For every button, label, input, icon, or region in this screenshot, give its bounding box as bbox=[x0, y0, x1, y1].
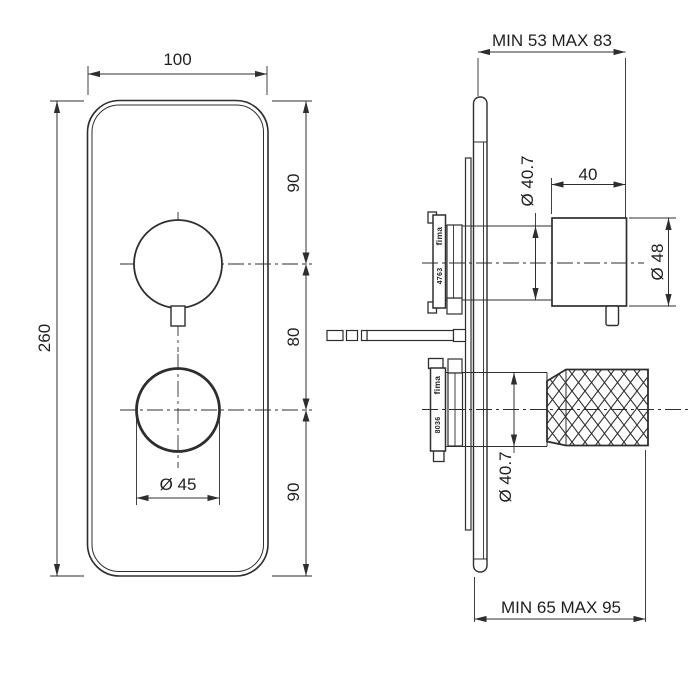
upper-cartridge-brand-label: fima bbox=[434, 227, 444, 246]
dim-vertical-chain: 90 80 90 bbox=[272, 101, 312, 576]
dim-upper-knob-diameter: Ø 48 bbox=[629, 218, 676, 306]
side-back-plate bbox=[466, 158, 472, 530]
chain-tick-lower bbox=[303, 399, 310, 411]
segment-bottom-label: 90 bbox=[284, 483, 303, 502]
upper-knob-side bbox=[552, 218, 627, 306]
dim-plate-width: 100 bbox=[88, 50, 267, 95]
upper-cartridge-code-label: 4763 bbox=[437, 268, 444, 285]
chain-tick-lower2 bbox=[303, 410, 310, 422]
front-view: 100 260 90 80 90 Ø 45 bbox=[35, 50, 312, 576]
dim-upper-knob-length: 40 bbox=[552, 165, 626, 214]
plate-height-label: 260 bbox=[35, 324, 54, 352]
pipe-end-cap bbox=[327, 331, 343, 341]
upper-knob-length-label: 40 bbox=[579, 165, 598, 184]
side-wall-plate bbox=[474, 97, 488, 572]
dim-upper-shaft-diameter: Ø 40.7 bbox=[518, 155, 537, 300]
side-outlet-pipe bbox=[327, 330, 466, 342]
thermostatic-mixer-technical-drawing: 100 260 90 80 90 Ø 45 bbox=[0, 0, 700, 700]
lower-connector-step bbox=[448, 359, 462, 373]
front-upper-knob bbox=[134, 220, 222, 308]
pipe-joint bbox=[454, 330, 466, 342]
lower-knob-diameter-label: Ø 45 bbox=[160, 475, 197, 494]
dim-lower-shaft-diameter: Ø 40.7 bbox=[496, 373, 515, 503]
upper-connector-step bbox=[447, 298, 462, 314]
lower-shaft-diameter-label: Ø 40.7 bbox=[496, 451, 515, 502]
pipe-tube bbox=[367, 331, 454, 341]
side-upper-unit: fima 4763 bbox=[422, 212, 644, 326]
front-upper-knob-tab bbox=[171, 306, 185, 326]
pipe-segment bbox=[347, 331, 358, 341]
side-lower-unit: fima 8036 bbox=[422, 359, 688, 462]
segment-middle-label: 80 bbox=[284, 328, 303, 347]
dim-plate-height-ext bbox=[50, 101, 84, 576]
upper-connector bbox=[447, 225, 462, 298]
drawing-canvas: 100 260 90 80 90 Ø 45 bbox=[0, 0, 700, 700]
pipe-collar bbox=[362, 331, 368, 341]
side-view: fima 4763 fima 8036 MIN 53 MAX 8 bbox=[327, 31, 688, 622]
chain-tick-upper2 bbox=[303, 264, 310, 276]
segment-top-label: 90 bbox=[284, 174, 303, 193]
upper-knob-tab-side bbox=[606, 306, 619, 326]
plate-width-label: 100 bbox=[163, 50, 191, 69]
dim-plate-height: 260 bbox=[35, 101, 84, 576]
knurled-knob bbox=[547, 370, 648, 446]
lower-cartridge-code-label: 8036 bbox=[435, 417, 442, 434]
lower-cartridge-top-tab bbox=[429, 359, 444, 369]
lower-cartridge-brand-label: fima bbox=[432, 376, 442, 395]
dim-plate-width-ext bbox=[88, 66, 267, 95]
upper-shaft-diameter-label: Ø 40.7 bbox=[518, 155, 537, 206]
lower-projection-label: MIN 65 MAX 95 bbox=[501, 598, 621, 617]
upper-knob-diameter-label: Ø 48 bbox=[648, 244, 667, 281]
upper-projection-label: MIN 53 MAX 83 bbox=[492, 31, 612, 50]
chain-tick-upper bbox=[303, 253, 310, 265]
front-plate-outer bbox=[88, 101, 269, 577]
